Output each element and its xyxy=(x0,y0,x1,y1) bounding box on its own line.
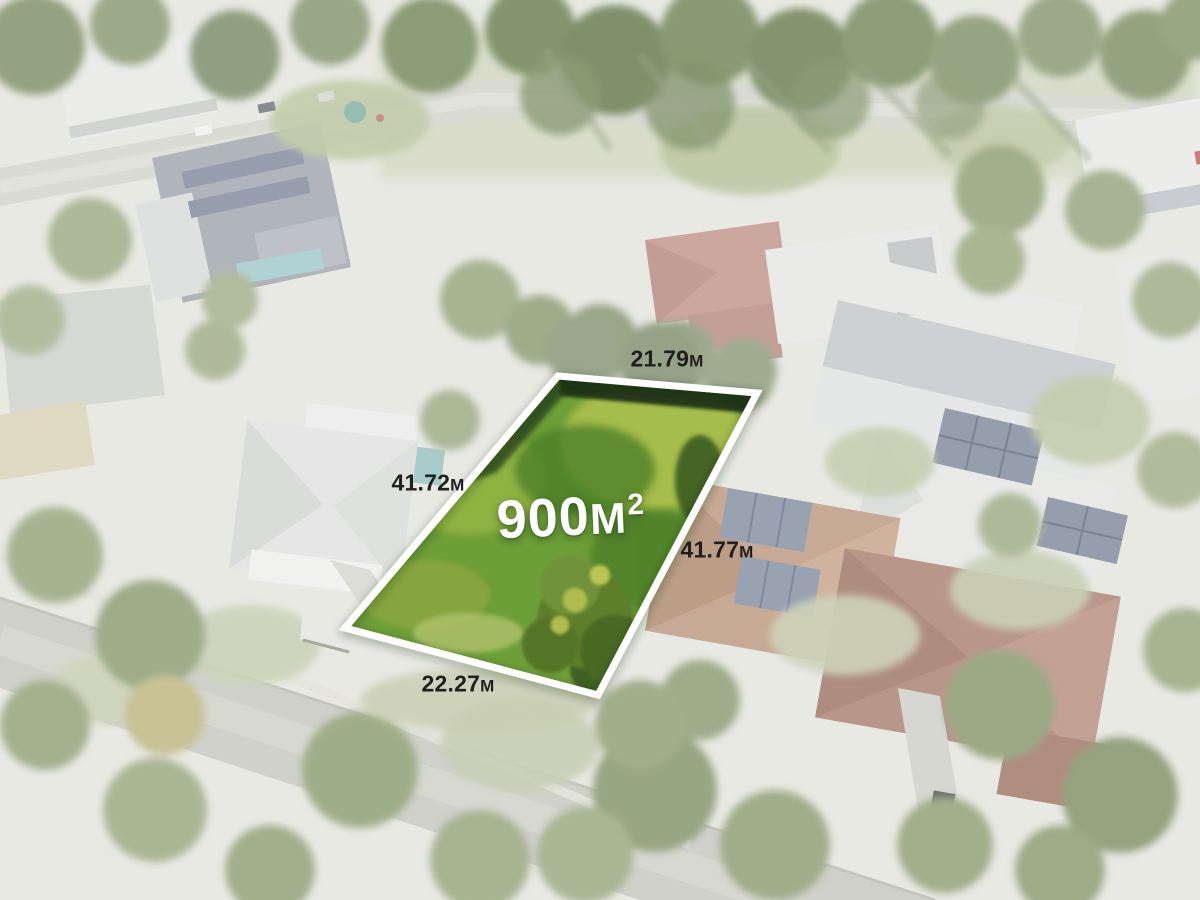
dimension-top-unit: M xyxy=(689,352,703,371)
lot-area-label: 900M2 xyxy=(495,483,646,551)
dimension-right-value: 41.77 xyxy=(681,537,740,563)
dimension-bottom-unit: M xyxy=(480,677,494,696)
aerial-photo xyxy=(0,0,1200,900)
real-estate-aerial-image: 21.79M 41.72M 41.77M 22.27M 900M2 xyxy=(0,0,1200,900)
dimension-label-left: 41.72M xyxy=(392,470,465,497)
dimension-bottom-value: 22.27 xyxy=(422,671,481,697)
dimension-label-right: 41.77M xyxy=(681,537,754,564)
dimension-top-value: 21.79 xyxy=(631,346,690,372)
lot-area-exponent: 2 xyxy=(627,487,646,521)
dimension-left-unit: M xyxy=(450,476,464,495)
lot-area-unit: M xyxy=(589,495,628,545)
dimension-right-unit: M xyxy=(739,543,753,562)
dimension-label-top: 21.79M xyxy=(631,346,704,373)
dimension-left-value: 41.72 xyxy=(392,470,451,496)
dimension-label-bottom: 22.27M xyxy=(422,671,495,698)
lot-area-value: 900 xyxy=(495,486,591,550)
